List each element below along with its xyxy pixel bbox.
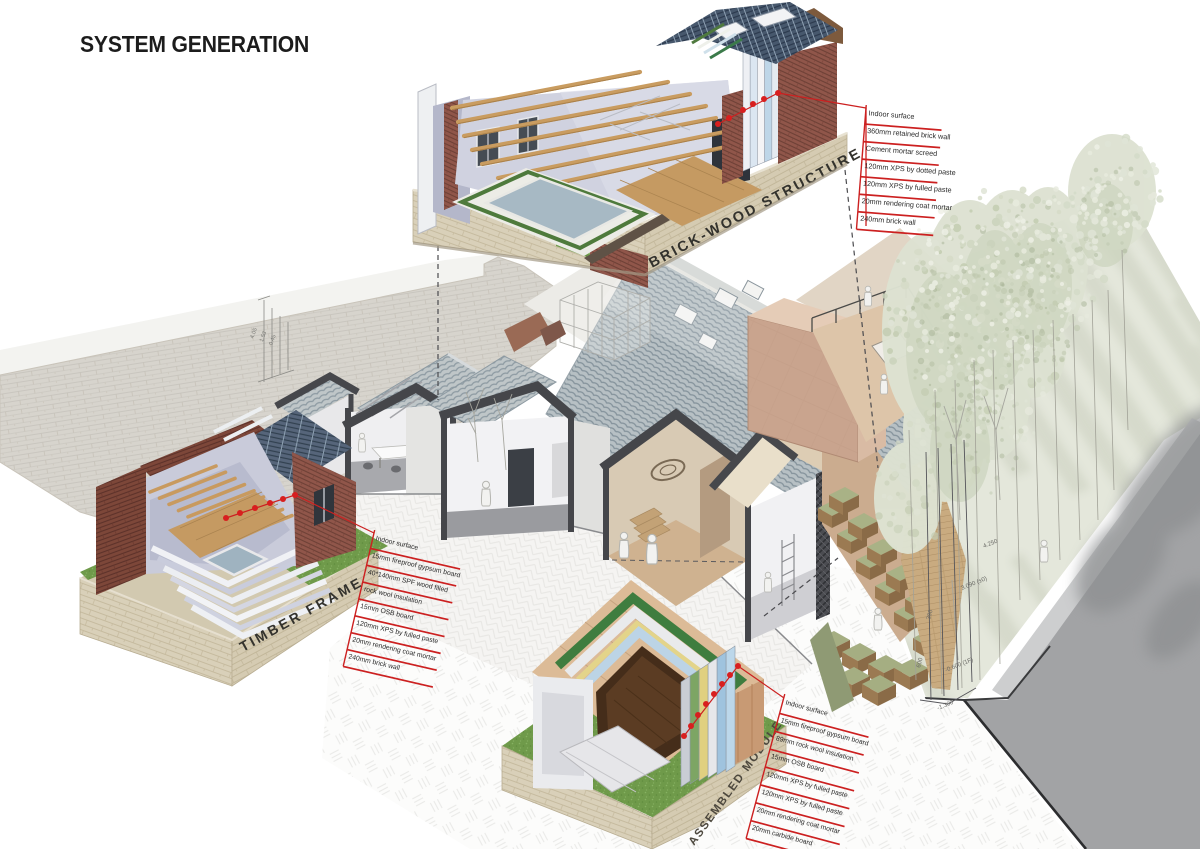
svg-text:SYSTEM GENERATION: SYSTEM GENERATION xyxy=(80,31,309,57)
